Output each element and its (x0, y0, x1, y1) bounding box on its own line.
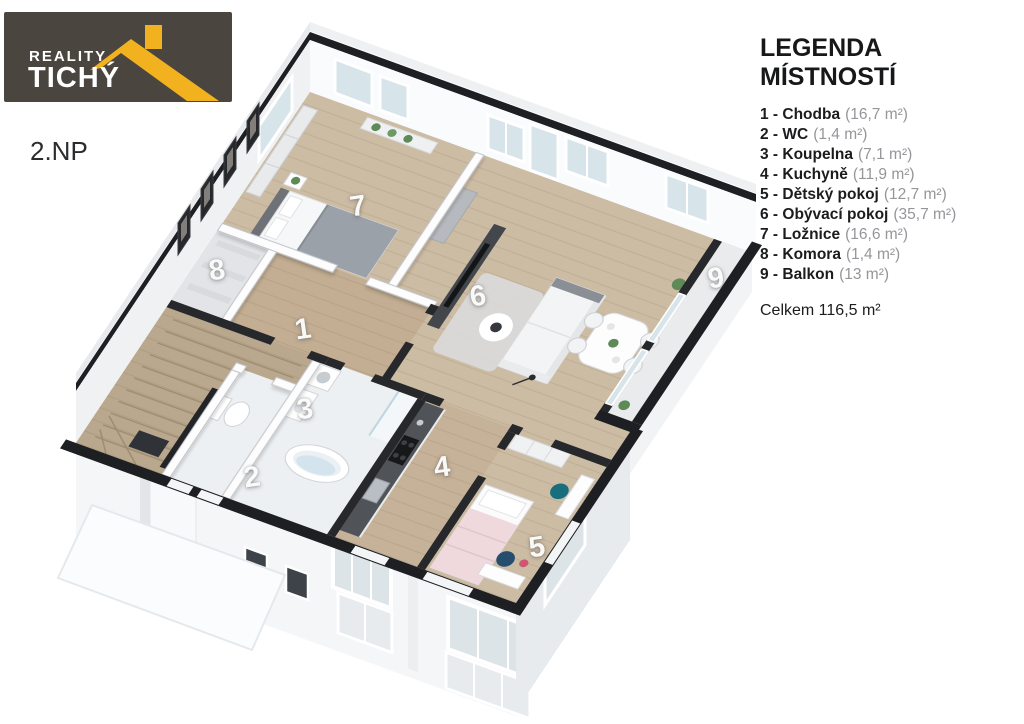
legend-title: LEGENDA MÍSTNOSTÍ (760, 34, 1016, 92)
legend-item: 8 - Komora(1,4 m²) (760, 245, 1016, 265)
legend-item: 7 - Ložnice(16,6 m²) (760, 225, 1016, 245)
legend-item: 3 - Koupelna(7,1 m²) (760, 145, 1016, 165)
legend-item: 1 - Chodba(16,7 m²) (760, 105, 1016, 125)
legend-item: 2 - WC(1,4 m²) (760, 125, 1016, 145)
page: REALITY TICHÝ 2.NP (0, 0, 1024, 724)
legend-total: Celkem 116,5 m² (760, 302, 1016, 320)
legend-item: 6 - Obývací pokoj(35,7 m²) (760, 205, 1016, 225)
legend-item: 9 - Balkon(13 m²) (760, 265, 1016, 285)
legend-item: 4 - Kuchyně(11,9 m²) (760, 165, 1016, 185)
legend-item: 5 - Dětský pokoj(12,7 m²) (760, 185, 1016, 205)
legend-list: 1 - Chodba(16,7 m²)2 - WC(1,4 m²)3 - Kou… (760, 105, 1016, 285)
legend: LEGENDA MÍSTNOSTÍ 1 - Chodba(16,7 m²)2 -… (760, 34, 1016, 320)
